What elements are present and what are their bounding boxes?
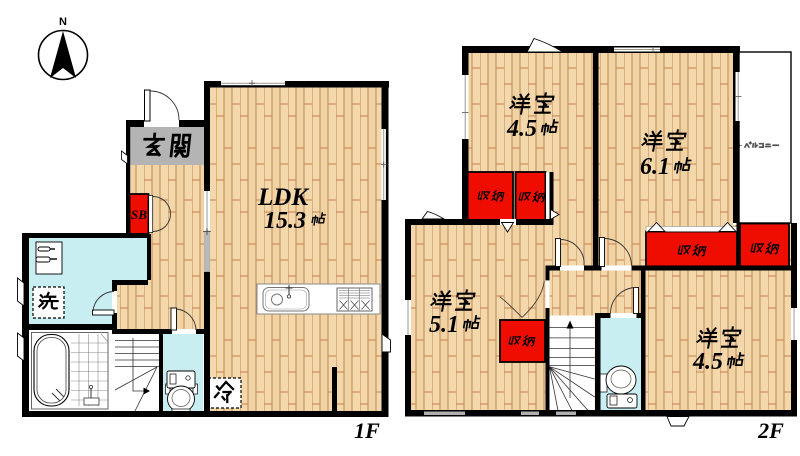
svg-text:2F: 2F [757, 418, 784, 443]
svg-text:5.1: 5.1 [429, 312, 459, 338]
svg-text:6.1: 6.1 [640, 154, 670, 180]
svg-text:SB: SB [131, 207, 147, 222]
svg-text:1F: 1F [354, 418, 380, 443]
svg-text:LDK: LDK [257, 184, 310, 211]
svg-text:4.5: 4.5 [506, 116, 537, 142]
svg-text:15.3: 15.3 [264, 208, 306, 234]
svg-text:4.5: 4.5 [692, 349, 723, 375]
svg-text:N: N [59, 16, 67, 28]
